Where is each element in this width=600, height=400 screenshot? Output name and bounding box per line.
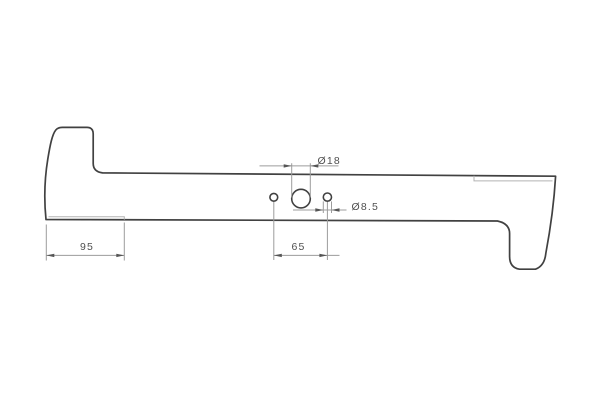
arrow-right-icon bbox=[315, 208, 323, 211]
dimension-hole-spacing: 65 bbox=[274, 202, 340, 260]
dim-label-hub-hole: Ø18 bbox=[318, 155, 341, 167]
arrow-left-icon bbox=[46, 254, 54, 257]
blade-drawing: Ø18 Ø8.5 95 65 bbox=[0, 0, 600, 400]
extension-lines-65 bbox=[274, 202, 340, 260]
right-mount-hole bbox=[323, 193, 331, 201]
dimension-left-end-length: 95 bbox=[46, 223, 124, 261]
arrow-left-icon bbox=[274, 254, 282, 257]
dim-label-side-hole: Ø8.5 bbox=[352, 201, 380, 213]
arrow-right-icon bbox=[116, 254, 124, 257]
left-mount-hole bbox=[270, 193, 278, 201]
arrow-right-icon bbox=[284, 164, 292, 167]
arrow-left-icon bbox=[332, 208, 340, 211]
dimension-hub-hole-diameter: Ø18 bbox=[260, 155, 341, 197]
technical-drawing-canvas: Ø18 Ø8.5 95 65 bbox=[0, 0, 600, 400]
center-hub-hole bbox=[292, 189, 311, 208]
arrow-right-icon bbox=[319, 254, 327, 257]
dim-label-hole-spacing: 65 bbox=[291, 241, 305, 253]
dim-label-left-end: 95 bbox=[80, 241, 94, 253]
